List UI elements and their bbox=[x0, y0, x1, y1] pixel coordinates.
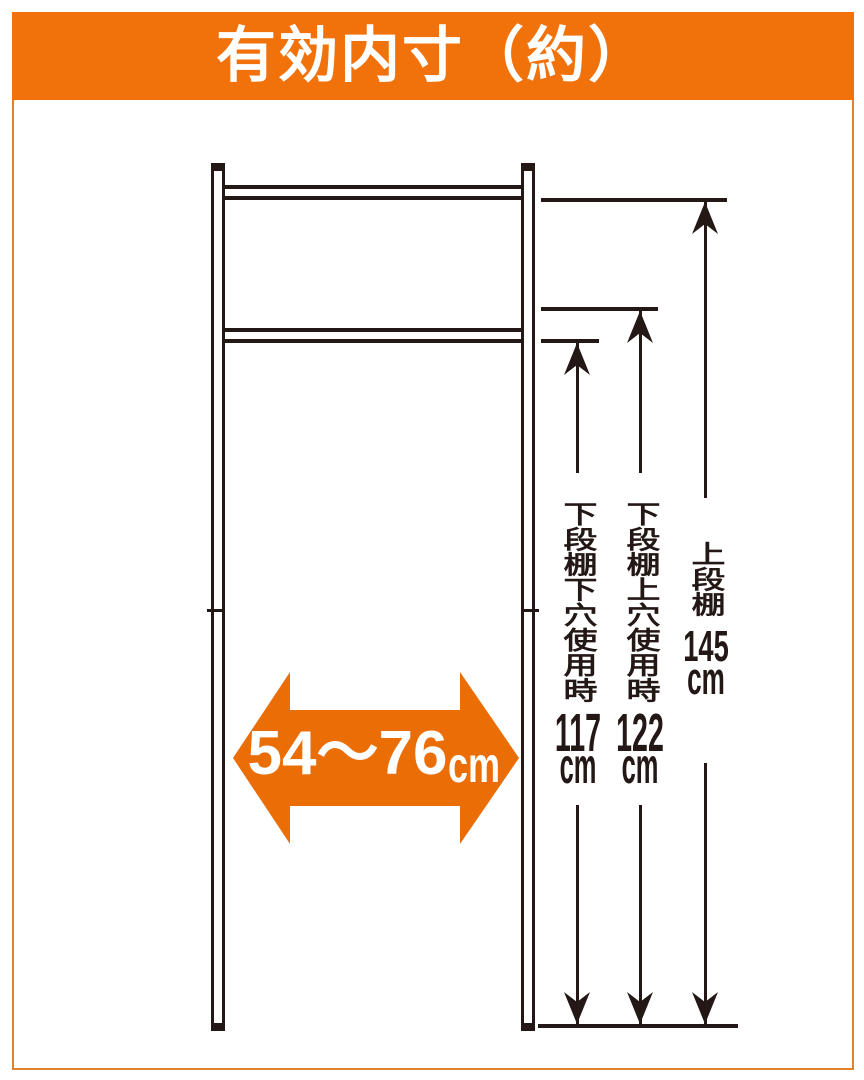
dim145-arrow-up-icon bbox=[692, 202, 718, 234]
width-unit: cm bbox=[448, 740, 506, 790]
left-post bbox=[211, 163, 225, 1031]
dim117-unit: cm bbox=[547, 741, 608, 791]
frame-border bbox=[12, 12, 854, 1070]
dim122-arrow-down-icon bbox=[627, 992, 653, 1024]
dim122-arrow-up-icon bbox=[627, 311, 653, 343]
right-post-top-cap bbox=[521, 163, 535, 171]
header-bar: 有効内寸（約） bbox=[12, 12, 854, 100]
dim145-unit: cm bbox=[671, 656, 741, 701]
dim145-lower-line bbox=[704, 763, 707, 1024]
diagram-canvas: { "header": { "title": "有効内寸（約）" }, "wid… bbox=[0, 0, 864, 1080]
middle-crossbar bbox=[225, 328, 521, 343]
top-crossbar bbox=[225, 185, 521, 200]
dim117-arrow-down-icon bbox=[564, 992, 590, 1024]
dim145-upper-line bbox=[704, 202, 707, 498]
dim145-arrow-down-icon bbox=[692, 992, 718, 1024]
dim117-label: 下段棚下穴使用時 bbox=[560, 501, 594, 702]
right-post-joint bbox=[521, 609, 539, 612]
right-post bbox=[521, 163, 535, 1031]
left-post-bottom-cap bbox=[211, 1023, 225, 1031]
dim122-label: 下段棚上穴使用時 bbox=[623, 501, 657, 702]
left-post-top-cap bbox=[211, 163, 225, 171]
page-title: 有効内寸（約） bbox=[216, 26, 650, 86]
dim117-arrow-up-icon bbox=[564, 343, 590, 375]
right-post-bottom-cap bbox=[521, 1023, 535, 1031]
width-value: 54～76 bbox=[230, 723, 465, 785]
dim145-label: 上段棚 bbox=[688, 541, 722, 616]
left-post-joint bbox=[207, 609, 225, 612]
dim122-unit: cm bbox=[609, 741, 670, 791]
ground-line bbox=[538, 1024, 738, 1028]
